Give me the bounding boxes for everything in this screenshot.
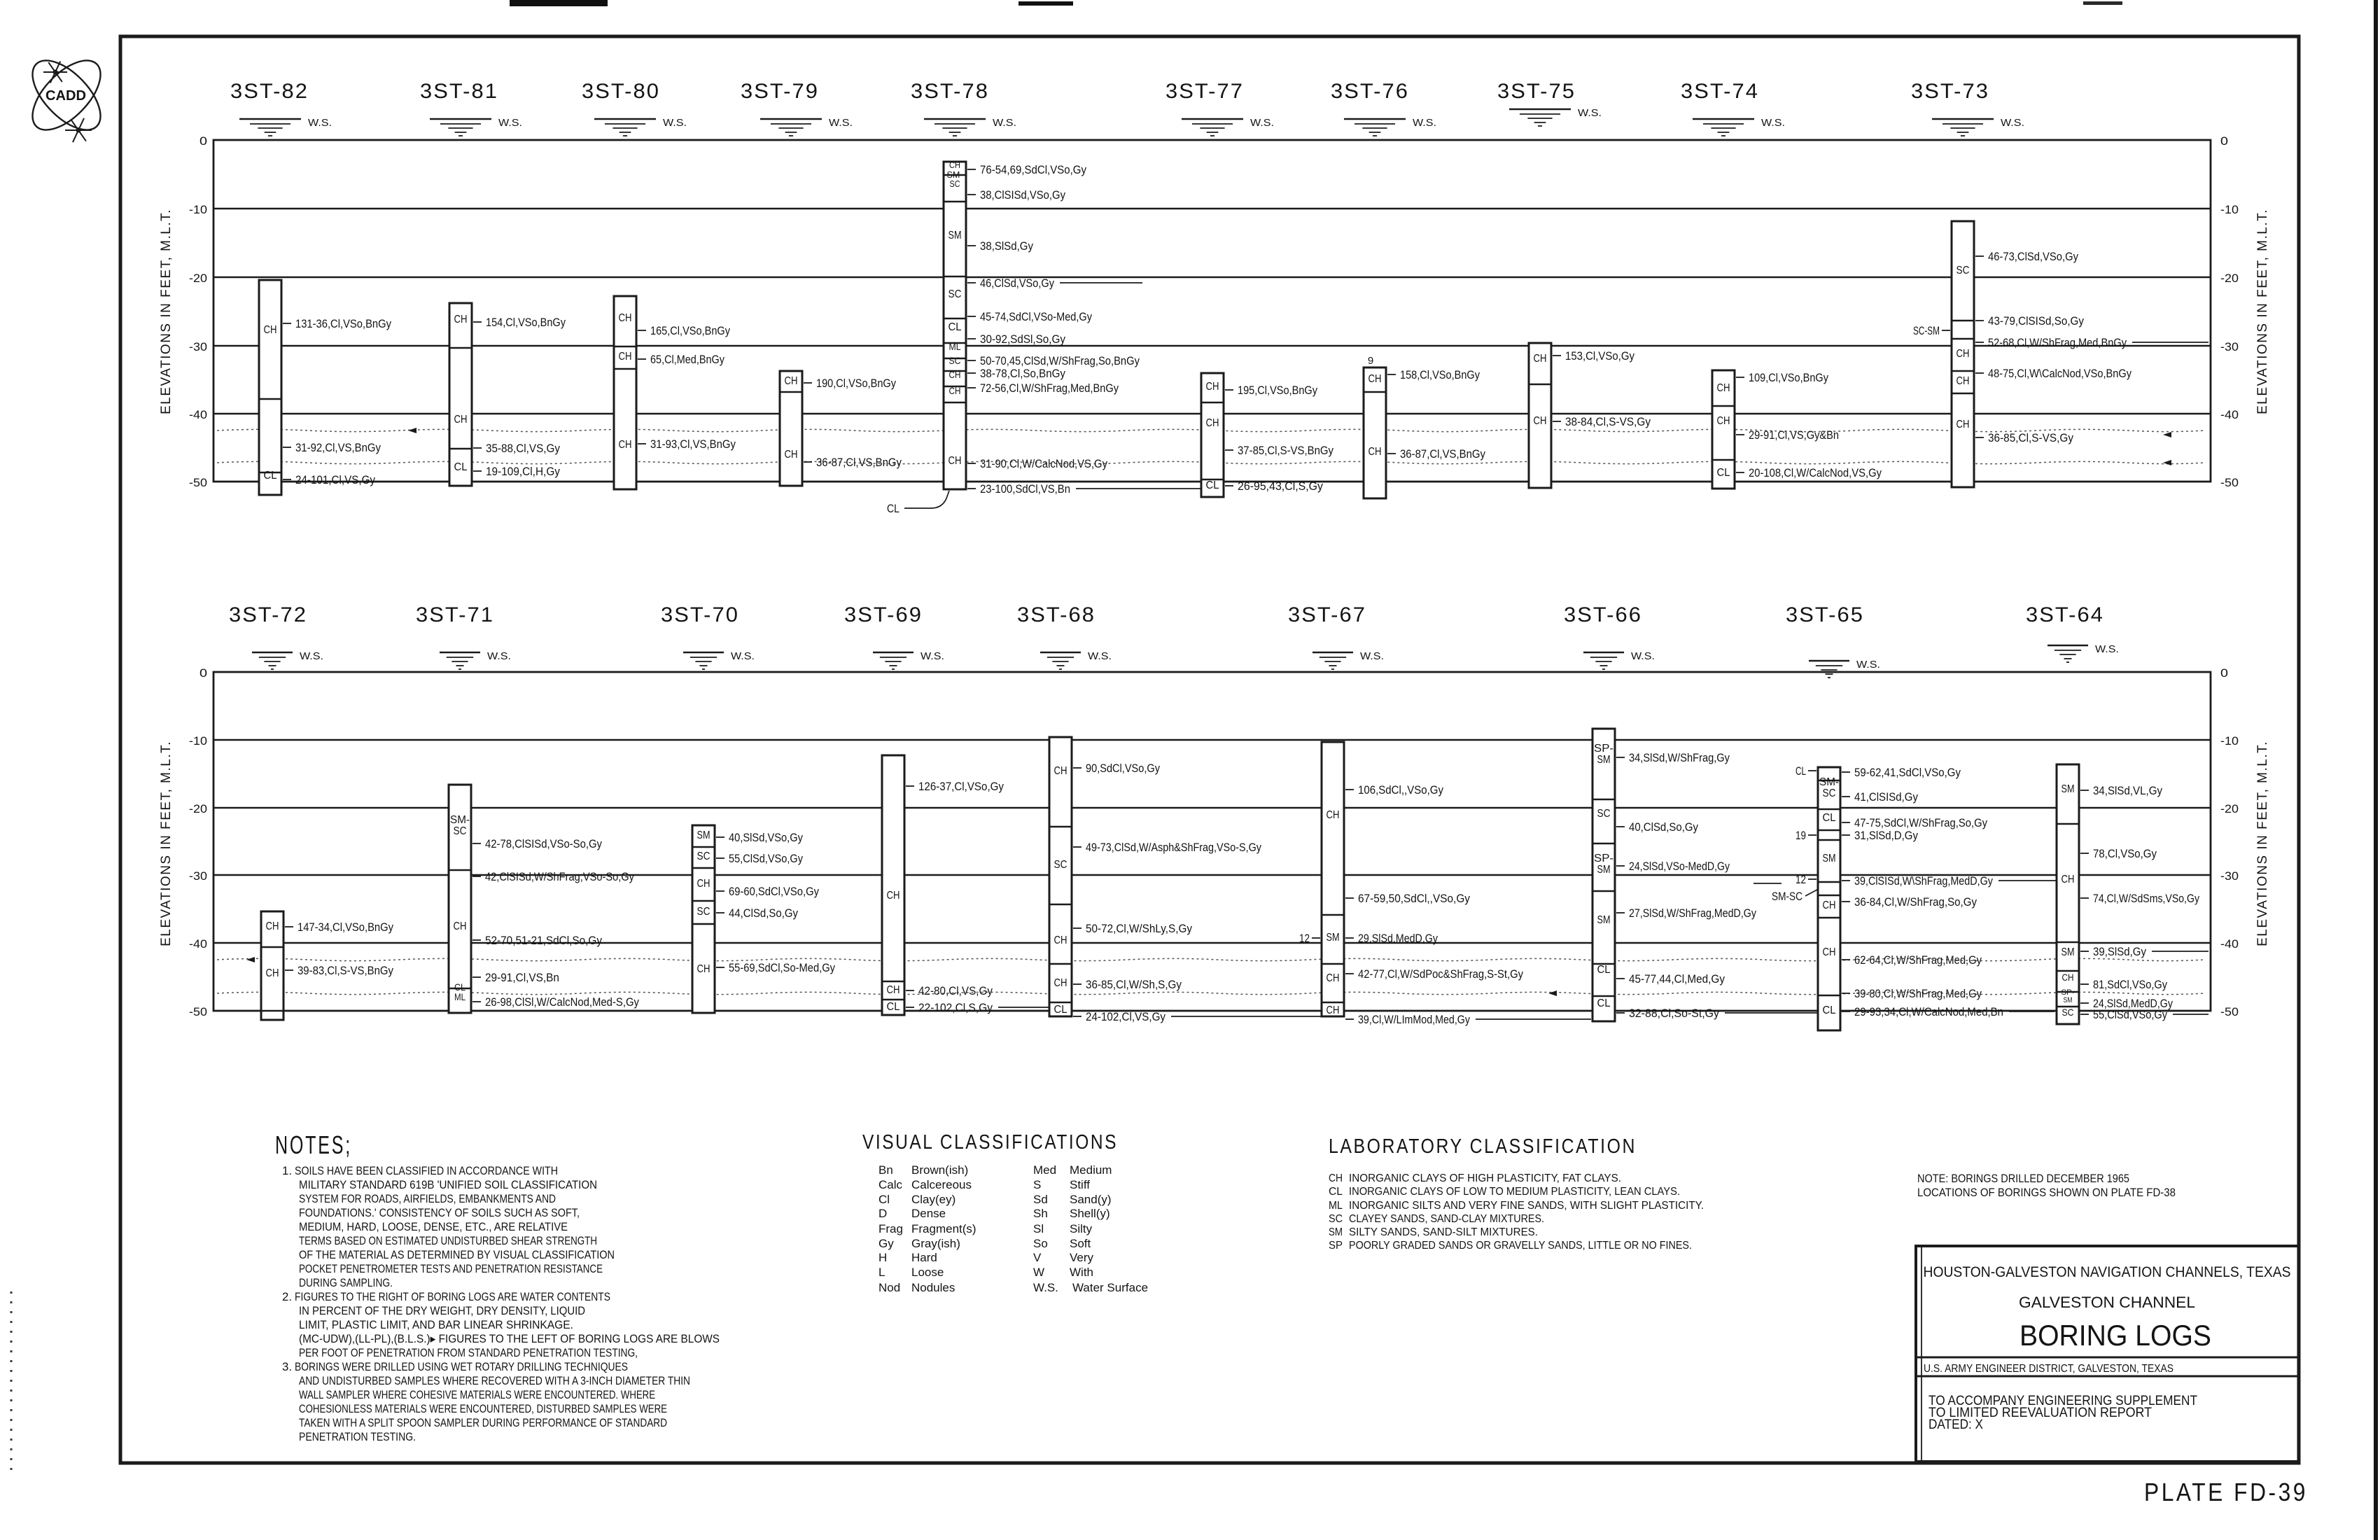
svg-text:SM-SC: SM-SC xyxy=(1772,890,1802,903)
svg-text:29,SlSd,MedD,Gy: 29,SlSd,MedD,Gy xyxy=(1358,932,1438,945)
svg-text:3ST-72: 3ST-72 xyxy=(229,603,307,626)
svg-text:0: 0 xyxy=(199,666,207,680)
svg-text:IN PERCENT OF THE DRY WEIGHT,: IN PERCENT OF THE DRY WEIGHT, DRY DENSIT… xyxy=(299,1304,585,1317)
svg-text:38,ClSISd,VSo,Gy: 38,ClSISd,VSo,Gy xyxy=(980,188,1065,202)
svg-text:CL: CL xyxy=(1597,964,1611,976)
svg-text:CH: CH xyxy=(1206,381,1219,393)
svg-text:-30: -30 xyxy=(2220,869,2239,883)
svg-text:147-34,Cl,VSo,BnGy: 147-34,Cl,VSo,BnGy xyxy=(297,920,393,934)
svg-text:CL: CL xyxy=(1795,764,1806,778)
svg-text:Fragment(s): Fragment(s) xyxy=(911,1222,976,1235)
svg-text:36-87,Cl,VS,BnGy: 36-87,Cl,VS,BnGy xyxy=(1400,447,1485,461)
svg-text:46,ClSd,VSo,Gy: 46,ClSd,VSo,Gy xyxy=(980,276,1054,290)
svg-text:WALL SAMPLER WHERE COHESIVE MA: WALL SAMPLER WHERE COHESIVE MATERIALS WE… xyxy=(299,1388,655,1401)
svg-text:-50: -50 xyxy=(189,476,207,489)
svg-text:PLATE FD-39: PLATE FD-39 xyxy=(2144,1478,2308,1506)
svg-text:Gy: Gy xyxy=(878,1237,894,1250)
svg-text:CH: CH xyxy=(1329,1172,1343,1184)
svg-text:MEDIUM, HARD, LOOSE, DENSE, ET: MEDIUM, HARD, LOOSE, DENSE, ETC., ARE RE… xyxy=(299,1220,568,1233)
svg-text:Sd: Sd xyxy=(1033,1193,1048,1206)
svg-text:Stiff: Stiff xyxy=(1070,1178,1090,1191)
svg-text:24-101,Cl,VS,Gy: 24-101,Cl,VS,Gy xyxy=(295,473,375,486)
svg-text:109,Cl,VSo,BnGy: 109,Cl,VSo,BnGy xyxy=(1749,371,1828,384)
svg-text:-30: -30 xyxy=(189,869,207,883)
svg-text:ELEVATIONS IN FEET, M.L.T.: ELEVATIONS IN FEET, M.L.T. xyxy=(159,209,174,414)
svg-text:W.S.: W.S. xyxy=(1250,117,1274,129)
svg-text:SM: SM xyxy=(948,230,962,241)
svg-text:-40: -40 xyxy=(2220,408,2239,421)
svg-text:131-36,Cl,VSo,BnGy: 131-36,Cl,VSo,BnGy xyxy=(295,317,391,330)
svg-text:39,Cl,W/LImMod,Med,Gy: 39,Cl,W/LImMod,Med,Gy xyxy=(1358,1013,1470,1026)
svg-text:SM: SM xyxy=(2064,996,2073,1004)
svg-text:So: So xyxy=(1033,1237,1048,1250)
svg-text:-50: -50 xyxy=(2220,476,2239,489)
svg-text:CL: CL xyxy=(1206,479,1219,491)
svg-text:-40: -40 xyxy=(189,408,207,421)
svg-text:PER FOOT OF PENETRATION FROM S: PER FOOT OF PENETRATION FROM STANDARD PE… xyxy=(299,1346,638,1359)
svg-text:Clay(ey): Clay(ey) xyxy=(911,1193,955,1206)
svg-text:45-74,SdCl,VSo-Med,Gy: 45-74,SdCl,VSo-Med,Gy xyxy=(980,310,1092,323)
svg-text:CL: CL xyxy=(887,1001,900,1013)
svg-text:35-88,Cl,VS,Gy: 35-88,Cl,VS,Gy xyxy=(486,442,560,455)
svg-text:W.S.: W.S. xyxy=(1413,117,1436,129)
svg-text:V: V xyxy=(1033,1251,1042,1264)
svg-text:SP-: SP- xyxy=(1594,743,1613,755)
svg-text:CH: CH xyxy=(264,324,277,336)
svg-text:SM: SM xyxy=(1329,1226,1343,1238)
svg-text:0: 0 xyxy=(2220,666,2228,680)
svg-text:CH: CH xyxy=(1534,415,1547,427)
svg-text:39-83,Cl,S-VS,BnGy: 39-83,Cl,S-VS,BnGy xyxy=(297,964,393,977)
svg-text:SM: SM xyxy=(1597,754,1611,766)
svg-text:DATED: X: DATED: X xyxy=(1928,1417,1983,1432)
svg-text:W: W xyxy=(1033,1266,1044,1279)
svg-text:50-70,45,ClSd,W/ShFrag,So,BnGy: 50-70,45,ClSd,W/ShFrag,So,BnGy xyxy=(980,354,1140,367)
svg-text:3ST-64: 3ST-64 xyxy=(2026,603,2104,626)
svg-text:SP-: SP- xyxy=(1594,853,1613,864)
svg-text:-20: -20 xyxy=(189,272,207,285)
svg-text:SC: SC xyxy=(1956,265,1970,276)
svg-text:W.S.: W.S. xyxy=(1856,659,1880,671)
svg-text:65,Cl,Med,BnGy: 65,Cl,Med,BnGy xyxy=(650,353,724,366)
svg-text:72-56,Cl,W/ShFrag,Med,BnGy: 72-56,Cl,W/ShFrag,Med,BnGy xyxy=(980,381,1119,395)
svg-text:32-88,Cl,So-St,Gy: 32-88,Cl,So-St,Gy xyxy=(1629,1007,1719,1020)
svg-text:CL: CL xyxy=(1054,1004,1067,1016)
svg-text:38-78,Cl,So,BnGy: 38-78,Cl,So,BnGy xyxy=(980,367,1065,380)
svg-text:190,Cl,VSo,BnGy: 190,Cl,VSo,BnGy xyxy=(816,377,896,390)
svg-text:40,SlSd,VSo,Gy: 40,SlSd,VSo,Gy xyxy=(729,831,803,844)
svg-text:W.S.: W.S. xyxy=(663,117,687,129)
svg-text:SM: SM xyxy=(697,829,710,841)
svg-text:W.S.: W.S. xyxy=(308,117,332,129)
svg-text:W.S.: W.S. xyxy=(2001,117,2024,129)
svg-text:3ST-81: 3ST-81 xyxy=(420,80,498,103)
svg-text:CH: CH xyxy=(887,890,900,902)
svg-text:LABORATORY CLASSIFICATION: LABORATORY CLASSIFICATION xyxy=(1329,1135,1637,1158)
svg-text:POCKET PENETROMETER TESTS AND: POCKET PENETROMETER TESTS AND PENETRATIO… xyxy=(299,1262,603,1275)
svg-text:LIMIT, PLASTIC LIMIT, AND BAR: LIMIT, PLASTIC LIMIT, AND BAR LINEAR SHR… xyxy=(299,1318,573,1331)
svg-text:36-85,Cl,S-VS,Gy: 36-85,Cl,S-VS,Gy xyxy=(1988,431,2073,444)
svg-text:W.S.: W.S. xyxy=(993,117,1016,129)
svg-text:SC: SC xyxy=(697,906,710,918)
svg-text:81,SdCl,VSo,Gy: 81,SdCl,VSo,Gy xyxy=(2093,978,2167,991)
svg-text:S: S xyxy=(1033,1178,1041,1191)
svg-text:CH: CH xyxy=(785,449,798,461)
svg-text:78,Cl,VSo,Gy: 78,Cl,VSo,Gy xyxy=(2093,847,2157,860)
svg-text:CH: CH xyxy=(1534,353,1547,365)
svg-text:-30: -30 xyxy=(189,340,207,353)
svg-text:W.S.: W.S. xyxy=(1088,650,1112,662)
svg-text:CH: CH xyxy=(454,314,468,325)
svg-text:3ST-65: 3ST-65 xyxy=(1786,603,1864,626)
svg-text:42-77,Cl,W/SdPoc&ShFrag,S-St,G: 42-77,Cl,W/SdPoc&ShFrag,S-St,Gy xyxy=(1358,967,1523,981)
svg-text:Gray(ish): Gray(ish) xyxy=(911,1237,960,1250)
svg-text:SM-: SM- xyxy=(450,814,470,826)
svg-text:H: H xyxy=(878,1251,887,1264)
svg-text:CL: CL xyxy=(454,461,468,473)
svg-text:CH: CH xyxy=(1717,415,1730,427)
svg-text:SM: SM xyxy=(1326,932,1340,944)
svg-text:19: 19 xyxy=(1795,829,1806,842)
svg-text:39,ClSISd,W\ShFrag,MedD,Gy: 39,ClSISd,W\ShFrag,MedD,Gy xyxy=(1854,874,1993,888)
svg-text:67-59,50,SdCl,,VSo,Gy: 67-59,50,SdCl,,VSo,Gy xyxy=(1358,892,1470,905)
svg-text:-50: -50 xyxy=(2220,1005,2239,1018)
svg-text:W.S.: W.S. xyxy=(1631,650,1655,662)
svg-text:SM: SM xyxy=(1823,853,1836,864)
svg-text:TAKEN WITH A SPLIT SPOON SAMPL: TAKEN WITH A SPLIT SPOON SAMPLER DURING … xyxy=(299,1416,667,1429)
svg-text:-50: -50 xyxy=(189,1005,207,1018)
svg-text:With: With xyxy=(1070,1266,1093,1279)
svg-text:29-91,Cl,VS,Gy&Bn: 29-91,Cl,VS,Gy&Bn xyxy=(1749,428,1839,442)
svg-text:-20: -20 xyxy=(2220,272,2239,285)
svg-text:BORING LOGS: BORING LOGS xyxy=(2019,1319,2211,1352)
svg-text:Water Surface: Water Surface xyxy=(1072,1281,1148,1294)
svg-text:ML: ML xyxy=(949,341,961,352)
svg-text:BORINGS WERE DRILLED USING WET: BORINGS WERE DRILLED USING WET ROTARY DR… xyxy=(295,1360,628,1373)
svg-text:CH: CH xyxy=(785,375,798,387)
svg-text:158,Cl,VSo,BnGy: 158,Cl,VSo,BnGy xyxy=(1400,368,1480,381)
svg-text:AND UNDISTURBED SAMPLES WHERE: AND UNDISTURBED SAMPLES WHERE RECOVERED … xyxy=(299,1374,690,1387)
svg-text:3ST-71: 3ST-71 xyxy=(416,603,494,626)
svg-text:CH: CH xyxy=(2062,972,2074,983)
svg-text:CH: CH xyxy=(1054,934,1067,946)
svg-text:31-90,Cl,W/CalcNod,VS,Gy: 31-90,Cl,W/CalcNod,VS,Gy xyxy=(980,457,1107,470)
svg-text:24,SlSd,VSo-MedD,Gy: 24,SlSd,VSo-MedD,Gy xyxy=(1629,860,1730,873)
svg-text:3ST-79: 3ST-79 xyxy=(741,80,819,103)
svg-text:INORGANIC CLAYS OF LOW TO MEDI: INORGANIC CLAYS OF LOW TO MEDIUM PLASTIC… xyxy=(1349,1186,1680,1198)
svg-text:62-64,Cl,W/ShFrag,Med,Gy: 62-64,Cl,W/ShFrag,Med,Gy xyxy=(1854,953,1982,967)
svg-text:FOUNDATIONS.' CONSISTENCY OF S: FOUNDATIONS.' CONSISTENCY OF SOILS SUCH … xyxy=(299,1206,580,1219)
svg-text:44,ClSd,So,Gy: 44,ClSd,So,Gy xyxy=(729,906,798,920)
svg-text:D: D xyxy=(878,1207,887,1220)
svg-text:CH: CH xyxy=(1326,809,1340,821)
svg-text:-10: -10 xyxy=(189,203,207,216)
svg-text:INORGANIC SILTS AND VERY FINE: INORGANIC SILTS AND VERY FINE SANDS, WIT… xyxy=(1349,1200,1704,1212)
svg-text:CL: CL xyxy=(264,470,277,482)
svg-text:2.: 2. xyxy=(282,1290,292,1303)
svg-text:SC: SC xyxy=(1054,859,1067,871)
svg-text:W.S.: W.S. xyxy=(487,650,511,662)
svg-text:CLAYEY SANDS, SAND-CLAY MIXTUR: CLAYEY SANDS, SAND-CLAY MIXTURES. xyxy=(1349,1213,1544,1225)
svg-text:CH: CH xyxy=(697,963,710,975)
svg-text:SC: SC xyxy=(1329,1213,1343,1225)
svg-text:SC: SC xyxy=(948,288,962,300)
svg-text:ML: ML xyxy=(454,991,465,1002)
svg-text:W.S.: W.S. xyxy=(300,650,323,662)
svg-text:24-102,Cl,VS,Gy: 24-102,Cl,VS,Gy xyxy=(1086,1010,1165,1023)
svg-text:3ST-82: 3ST-82 xyxy=(230,80,309,103)
svg-text:Cl: Cl xyxy=(878,1193,890,1206)
svg-text:55,ClSd,VSo,Gy: 55,ClSd,VSo,Gy xyxy=(729,852,803,865)
svg-text:W.S.: W.S. xyxy=(1033,1281,1058,1294)
svg-text:CH: CH xyxy=(1956,348,1970,360)
svg-text:-20: -20 xyxy=(189,802,207,815)
svg-text:SC: SC xyxy=(454,825,467,837)
svg-text:W.S.: W.S. xyxy=(731,650,755,662)
svg-text:195,Cl,VSo,BnGy: 195,Cl,VSo,BnGy xyxy=(1238,384,1317,397)
svg-text:Bn: Bn xyxy=(878,1163,893,1177)
svg-text:SILTY SANDS, SAND-SILT MIXTURE: SILTY SANDS, SAND-SILT MIXTURES. xyxy=(1349,1226,1538,1238)
svg-text:20-108,Cl,W/CalcNod,VS,Gy: 20-108,Cl,W/CalcNod,VS,Gy xyxy=(1749,466,1882,479)
svg-text:Loose: Loose xyxy=(911,1266,944,1279)
svg-text:3ST-68: 3ST-68 xyxy=(1017,603,1095,626)
svg-text:SM: SM xyxy=(2061,946,2075,958)
svg-text:3ST-67: 3ST-67 xyxy=(1288,603,1366,626)
svg-text:SC: SC xyxy=(1597,808,1611,820)
svg-text:DURING SAMPLING.: DURING SAMPLING. xyxy=(299,1276,393,1289)
svg-text:CH: CH xyxy=(454,414,468,426)
svg-text:CH: CH xyxy=(1054,765,1067,777)
svg-text:VISUAL CLASSIFICATIONS: VISUAL CLASSIFICATIONS xyxy=(862,1131,1118,1154)
svg-text:SC: SC xyxy=(697,850,710,862)
svg-text:52-70,51-21,SdCl,So,Gy: 52-70,51-21,SdCl,So,Gy xyxy=(485,934,602,947)
svg-text:34,SlSd,W/ShFrag,Gy: 34,SlSd,W/ShFrag,Gy xyxy=(1629,751,1730,764)
svg-text:SM: SM xyxy=(1597,864,1611,876)
svg-text:39,SlSd,Gy: 39,SlSd,Gy xyxy=(2093,945,2146,958)
svg-text:SC: SC xyxy=(2062,1007,2074,1018)
svg-text:W.S.: W.S. xyxy=(1761,117,1785,129)
svg-text:CH: CH xyxy=(1326,972,1340,984)
svg-text:50-72,Cl,W/ShLy,S,Gy: 50-72,Cl,W/ShLy,S,Gy xyxy=(1086,922,1192,935)
svg-text:-40: -40 xyxy=(189,937,207,951)
svg-text:29-93,34,Cl,W/CalcNod,Med,Bn: 29-93,34,Cl,W/CalcNod,Med,Bn xyxy=(1854,1005,2003,1018)
svg-text:Very: Very xyxy=(1070,1251,1094,1264)
svg-text:37-85,Cl,S-VS,BnGy: 37-85,Cl,S-VS,BnGy xyxy=(1238,444,1333,457)
svg-text:30-92,SdSl,So,Gy: 30-92,SdSl,So,Gy xyxy=(980,332,1065,346)
svg-text:22-102,Cl,S,Gy: 22-102,Cl,S,Gy xyxy=(918,1001,993,1014)
svg-text:31,SlSd,D,Gy: 31,SlSd,D,Gy xyxy=(1854,829,1918,842)
svg-text:0: 0 xyxy=(199,134,207,148)
svg-text:ELEVATIONS IN FEET, M.L.T.: ELEVATIONS IN FEET, M.L.T. xyxy=(159,741,174,946)
svg-text:Dense: Dense xyxy=(911,1207,946,1220)
svg-text:47-75,SdCl,W/ShFrag,So,Gy: 47-75,SdCl,W/ShFrag,So,Gy xyxy=(1854,816,1987,829)
svg-text:U.S. ARMY ENGINEER DISTRICT, G: U.S. ARMY ENGINEER DISTRICT, GALVESTON, … xyxy=(1924,1363,2173,1375)
svg-text:90,SdCl,VSo,Gy: 90,SdCl,VSo,Gy xyxy=(1086,762,1160,775)
svg-text:CL: CL xyxy=(887,502,899,515)
svg-text:CL: CL xyxy=(1597,997,1611,1009)
svg-text:27,SlSd,W/ShFrag,MedD,Gy: 27,SlSd,W/ShFrag,MedD,Gy xyxy=(1629,906,1756,920)
svg-text:HOUSTON-GALVESTON NAVIGATION C: HOUSTON-GALVESTON NAVIGATION CHANNELS, T… xyxy=(1924,1264,2291,1280)
svg-text:42-78,ClSISd,VSo-So,Gy: 42-78,ClSISd,VSo-So,Gy xyxy=(485,837,602,850)
svg-text:9: 9 xyxy=(1368,355,1373,367)
svg-text:CH: CH xyxy=(266,967,279,979)
svg-text:SYSTEM FOR ROADS, AIRFIELDS, E: SYSTEM FOR ROADS, AIRFIELDS, EMBANKMENTS… xyxy=(299,1192,556,1205)
svg-text:CL: CL xyxy=(1823,812,1836,824)
svg-text:-10: -10 xyxy=(2220,734,2239,748)
svg-text:45-77,44,Cl,Med,Gy: 45-77,44,Cl,Med,Gy xyxy=(1629,972,1725,986)
svg-text:1.: 1. xyxy=(282,1164,292,1177)
svg-text:38,SlSd,Gy: 38,SlSd,Gy xyxy=(980,239,1033,253)
svg-text:LOCATIONS OF BORINGS SHOWN ON: LOCATIONS OF BORINGS SHOWN ON PLATE FD-3… xyxy=(1917,1186,2176,1199)
svg-text:W.S.: W.S. xyxy=(920,650,944,662)
svg-text:CL: CL xyxy=(948,321,962,333)
svg-text:CH: CH xyxy=(949,385,961,396)
svg-text:SM: SM xyxy=(2061,783,2075,795)
svg-text:(MC-UDW),(LL-PL),(B.L.S.)▸ FI: (MC-UDW),(LL-PL),(B.L.S.)▸ FIGURES TO TH… xyxy=(299,1332,720,1345)
svg-text:CL: CL xyxy=(1717,467,1730,479)
svg-text:154,Cl,VSo,BnGy: 154,Cl,VSo,BnGy xyxy=(486,316,566,329)
svg-text:3ST-76: 3ST-76 xyxy=(1331,80,1409,103)
svg-text:W.S.: W.S. xyxy=(1360,650,1384,662)
svg-text:Med: Med xyxy=(1033,1163,1056,1177)
svg-text:SM: SM xyxy=(1597,914,1611,926)
svg-text:W.S.: W.S. xyxy=(829,117,853,129)
svg-text:49-73,ClSd,W/Asph&ShFrag,VSo-S: 49-73,ClSd,W/Asph&ShFrag,VSo-S,Gy xyxy=(1086,841,1261,854)
svg-text:CH: CH xyxy=(2061,874,2075,885)
svg-text:55-69,SdCl,So-Med,Gy: 55-69,SdCl,So-Med,Gy xyxy=(729,961,835,974)
svg-text:GALVESTON CHANNEL: GALVESTON CHANNEL xyxy=(2019,1294,2195,1311)
svg-text:46-73,ClSd,VSo,Gy: 46-73,ClSd,VSo,Gy xyxy=(1988,250,2078,263)
svg-text:38-84,Cl,S-VS,Gy: 38-84,Cl,S-VS,Gy xyxy=(1565,415,1651,428)
svg-text:CH: CH xyxy=(948,455,962,467)
svg-text:165,Cl,VSo,BnGy: 165,Cl,VSo,BnGy xyxy=(650,324,730,337)
svg-text:153,Cl,VSo,Gy: 153,Cl,VSo,Gy xyxy=(1565,349,1634,363)
svg-text:-40: -40 xyxy=(2220,937,2239,951)
svg-text:Shell(y): Shell(y) xyxy=(1070,1207,1110,1220)
svg-text:CH: CH xyxy=(454,920,467,932)
svg-text:43-79,ClSISd,So,Gy: 43-79,ClSISd,So,Gy xyxy=(1988,314,2084,328)
svg-text:12: 12 xyxy=(1299,932,1310,945)
svg-text:CH: CH xyxy=(1956,375,1970,387)
svg-text:3ST-74: 3ST-74 xyxy=(1681,80,1759,103)
svg-text:3ST-69: 3ST-69 xyxy=(844,603,923,626)
svg-text:Nodules: Nodules xyxy=(911,1281,955,1294)
svg-text:NOTE: BORINGS DRILLED DECEMBER: NOTE: BORINGS DRILLED DECEMBER 1965 xyxy=(1917,1172,2129,1185)
svg-text:Sl: Sl xyxy=(1033,1222,1044,1235)
svg-text:23-100,SdCl,VS,Bn: 23-100,SdCl,VS,Bn xyxy=(980,482,1070,496)
svg-text:CH: CH xyxy=(619,351,632,363)
svg-text:3ST-80: 3ST-80 xyxy=(582,80,660,103)
svg-text:76-54,69,SdCl,VSo,Gy: 76-54,69,SdCl,VSo,Gy xyxy=(980,163,1086,176)
svg-text:W.S.: W.S. xyxy=(2095,643,2119,655)
svg-text:Silty: Silty xyxy=(1070,1222,1093,1235)
svg-text:3ST-73: 3ST-73 xyxy=(1911,80,1989,103)
svg-text:26-98,ClSl,W/CalcNod,Med-S,Gy: 26-98,ClSl,W/CalcNod,Med-S,Gy xyxy=(485,995,639,1009)
svg-text:3ST-77: 3ST-77 xyxy=(1165,80,1244,103)
svg-text:CH: CH xyxy=(1054,977,1067,989)
svg-text:Sh: Sh xyxy=(1033,1207,1048,1220)
svg-text:74,Cl,W/SdSms,VSo,Gy: 74,Cl,W/SdSms,VSo,Gy xyxy=(2093,892,2199,905)
svg-text:Calcereous: Calcereous xyxy=(911,1178,972,1191)
svg-text:CH: CH xyxy=(887,984,900,996)
svg-text:36-85,Cl,W/Sh,S,Gy: 36-85,Cl,W/Sh,S,Gy xyxy=(1086,978,1182,991)
svg-text:MILITARY STANDARD 619B 'UNIFIE: MILITARY STANDARD 619B 'UNIFIED SOIL CLA… xyxy=(299,1178,597,1191)
svg-text:3ST-70: 3ST-70 xyxy=(661,603,739,626)
svg-text:CH: CH xyxy=(1823,946,1836,958)
svg-text:12: 12 xyxy=(1795,873,1806,886)
svg-text:CH: CH xyxy=(619,439,632,451)
svg-text:-20: -20 xyxy=(2220,802,2239,815)
svg-text:26-95,43,Cl,S,Gy: 26-95,43,Cl,S,Gy xyxy=(1238,479,1323,493)
svg-text:SOILS HAVE BEEN CLASSIFIED IN: SOILS HAVE BEEN CLASSIFIED IN ACCORDANCE… xyxy=(295,1164,558,1177)
svg-text:CH: CH xyxy=(1206,417,1219,429)
svg-text:Hard: Hard xyxy=(911,1251,937,1264)
svg-text:-10: -10 xyxy=(2220,203,2239,216)
svg-text:CH: CH xyxy=(619,312,632,324)
svg-text:34,SlSd,VL,Gy: 34,SlSd,VL,Gy xyxy=(2093,784,2162,797)
svg-text:41,ClSISd,Gy: 41,ClSISd,Gy xyxy=(1854,790,1918,804)
svg-text:Frag: Frag xyxy=(878,1222,903,1235)
svg-text:-10: -10 xyxy=(189,734,207,748)
svg-text:ML: ML xyxy=(1329,1200,1343,1212)
svg-text:Soft: Soft xyxy=(1070,1237,1091,1250)
svg-text:59-62,41,SdCl,VSo,Gy: 59-62,41,SdCl,VSo,Gy xyxy=(1854,766,1961,779)
svg-text:Calc: Calc xyxy=(878,1178,903,1191)
svg-text:TERMS BASED ON ESTIMATED UNDIS: TERMS BASED ON ESTIMATED UNDISTURBED SHE… xyxy=(299,1234,597,1247)
svg-text:42-80,Cl,VS,Gy: 42-80,Cl,VS,Gy xyxy=(918,984,993,997)
svg-text:Nod: Nod xyxy=(878,1281,900,1294)
svg-text:CH: CH xyxy=(949,369,961,380)
svg-text:CL: CL xyxy=(1329,1186,1343,1198)
svg-text:126-37,Cl,VSo,Gy: 126-37,Cl,VSo,Gy xyxy=(918,780,1004,793)
svg-text:19-109,Cl,H,Gy: 19-109,Cl,H,Gy xyxy=(486,465,560,478)
svg-text:48-75,Cl,W\CalcNod,VSo,BnGy: 48-75,Cl,W\CalcNod,VSo,BnGy xyxy=(1988,367,2131,380)
svg-text:31-92,Cl,VS,BnGy: 31-92,Cl,VS,BnGy xyxy=(295,441,381,454)
svg-text:55,ClSd,VSo,Gy: 55,ClSd,VSo,Gy xyxy=(2093,1008,2167,1021)
svg-text:CH: CH xyxy=(949,160,960,170)
svg-text:PENETRATION TESTING.: PENETRATION TESTING. xyxy=(299,1430,416,1443)
svg-text:CH: CH xyxy=(1956,419,1970,430)
svg-text:SC: SC xyxy=(950,178,960,189)
svg-text:39-80,Cl,W/ShFrag,Med,Gy: 39-80,Cl,W/ShFrag,Med,Gy xyxy=(1854,987,1982,1000)
svg-text:SP: SP xyxy=(1329,1240,1343,1252)
svg-text:ELEVATIONS IN FEET, M.L.T.: ELEVATIONS IN FEET, M.L.T. xyxy=(2255,209,2270,414)
svg-text:CH: CH xyxy=(1326,1004,1340,1016)
svg-text:36-87,Cl,VS,BnGy: 36-87,Cl,VS,BnGy xyxy=(816,456,902,469)
svg-text:CADD: CADD xyxy=(45,88,86,104)
svg-text:NOTES;: NOTES; xyxy=(275,1130,352,1159)
svg-text:CH: CH xyxy=(1368,446,1382,458)
svg-text:CH: CH xyxy=(697,878,710,890)
svg-text:-30: -30 xyxy=(2220,340,2239,353)
svg-text:CH: CH xyxy=(1368,373,1382,385)
svg-text:SC: SC xyxy=(949,355,961,366)
svg-text:Sand(y): Sand(y) xyxy=(1070,1193,1112,1206)
svg-text:SM-: SM- xyxy=(1819,776,1839,788)
svg-text:OF THE MATERIAL AS DETERMINED: OF THE MATERIAL AS DETERMINED BY VISUAL … xyxy=(299,1248,615,1261)
svg-text:CH: CH xyxy=(1717,382,1730,394)
svg-text:3ST-78: 3ST-78 xyxy=(911,80,989,103)
svg-text:INORGANIC CLAYS OF HIGH PLASTI: INORGANIC CLAYS OF HIGH PLASTICITY, FAT … xyxy=(1349,1172,1621,1184)
svg-text:CH: CH xyxy=(1823,899,1836,911)
svg-text:3ST-75: 3ST-75 xyxy=(1497,80,1576,103)
svg-text:COHESIONLESS MATERIALS WERE EN: COHESIONLESS MATERIALS WERE ENCOUNTERED,… xyxy=(299,1402,667,1415)
svg-text:CH: CH xyxy=(266,920,279,932)
svg-text:40,ClSd,So,Gy: 40,ClSd,So,Gy xyxy=(1629,820,1698,834)
svg-text:69-60,SdCl,VSo,Gy: 69-60,SdCl,VSo,Gy xyxy=(729,885,819,898)
svg-text:3.: 3. xyxy=(282,1360,292,1373)
svg-text:42,ClSISd,W/ShFrag,VSo-So,Gy: 42,ClSISd,W/ShFrag,VSo-So,Gy xyxy=(485,870,634,883)
